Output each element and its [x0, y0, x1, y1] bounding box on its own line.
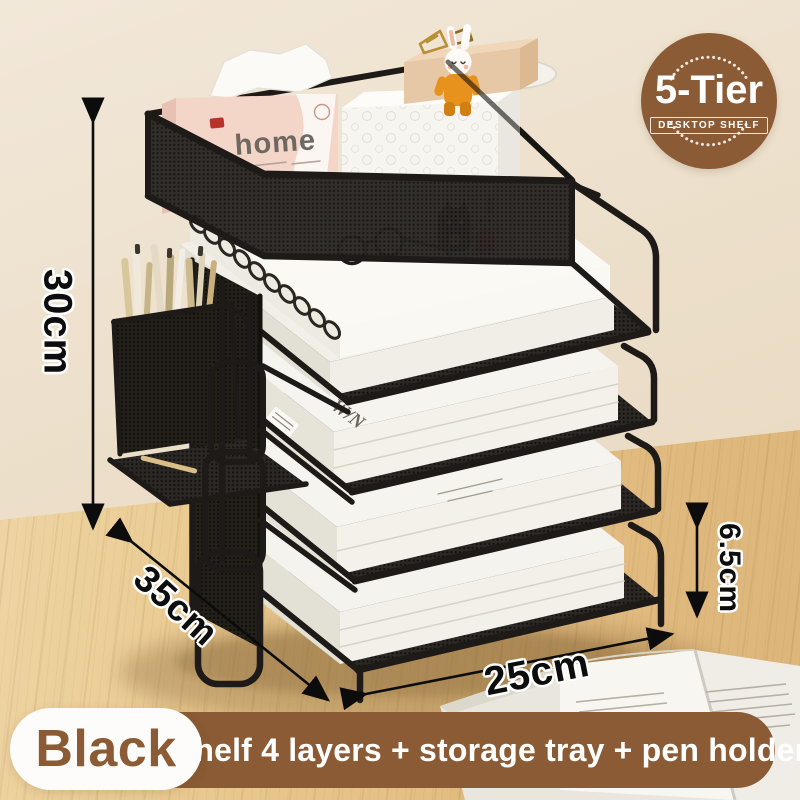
tissue-box-brand: home [234, 124, 317, 162]
tier-badge: 5-Tier DESKTOP SHELF [641, 33, 777, 169]
product-description-text: Shelf 4 layers + storage tray + pen hold… [173, 732, 800, 769]
height-dimension-label: 30cm [35, 269, 80, 375]
color-name-label: Black [35, 719, 176, 779]
color-swatch-pill: Black [10, 708, 202, 790]
product-description-banner: Shelf 4 layers + storage tray + pen hold… [105, 712, 775, 788]
badge-dotted-arcs [641, 33, 777, 169]
layer-height-dimension-label: 6.5cm [712, 523, 746, 613]
product-photo-card: W/N [0, 0, 800, 800]
